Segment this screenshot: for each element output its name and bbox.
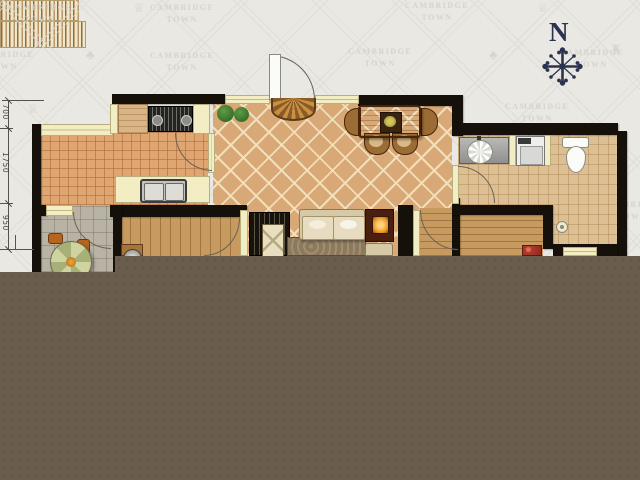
crown-motif: ♕ — [537, 0, 549, 16]
bathroom-vanity — [459, 137, 509, 164]
drain-center — [560, 225, 564, 229]
shell-sink-icon — [467, 140, 493, 164]
rug-center-panel — [262, 224, 284, 257]
window — [315, 95, 359, 104]
stove-icon — [148, 106, 193, 132]
kitchen-sink-icon — [140, 179, 187, 203]
table-lamp-icon — [372, 216, 389, 234]
dimension-extension-line — [15, 235, 16, 250]
door-jamb — [413, 210, 420, 256]
wall — [543, 205, 553, 249]
tv-cabinet-rug — [249, 212, 290, 256]
tower-motif: ♜ — [610, 42, 622, 58]
watermark: CAMBRIDGETOWN — [8, 2, 72, 26]
wall — [458, 123, 618, 135]
wall — [110, 205, 247, 217]
sofa — [299, 209, 365, 240]
sink-basin — [144, 183, 164, 201]
sofa-cushion — [302, 216, 334, 240]
door-jamb — [240, 210, 248, 256]
window — [225, 95, 270, 104]
sink-basin — [165, 183, 184, 201]
wall — [452, 205, 543, 215]
unloaded-image-region — [0, 272, 640, 480]
washing-machine-icon — [516, 136, 545, 166]
watermark: CAMBRIDGETOWN — [150, 50, 214, 74]
kitchen-counter — [118, 104, 148, 134]
wall — [398, 205, 413, 256]
sofa-cushion — [333, 216, 365, 240]
balcony-door-sill — [46, 205, 73, 216]
watermark: CAMBRIDGETOWN — [0, 49, 34, 73]
watermark: CAMBRIDGETOWN — [348, 46, 412, 70]
door-jamb — [544, 135, 551, 166]
floor-plan-image: CAMBRIDGETOWN CAMBRIDGETOWN CAMBRIDGETOW… — [0, 0, 640, 480]
washer-lid — [520, 146, 543, 165]
window — [563, 247, 597, 256]
burner-icon — [152, 115, 163, 126]
window — [41, 124, 113, 136]
crown-motif: ♕ — [133, 0, 145, 16]
crown-motif: ♕ — [27, 101, 39, 117]
faucet-icon — [477, 136, 481, 140]
wall — [112, 94, 225, 104]
tree-motif: ♣ — [489, 47, 498, 62]
dimension-label: 1750 — [1, 152, 10, 173]
burner-icon — [181, 115, 192, 126]
armchair — [365, 243, 393, 256]
watermark: CAMBRIDGETOWN — [405, 0, 469, 24]
sofa-pillow — [309, 220, 326, 229]
side-table — [365, 209, 394, 242]
door-jamb — [110, 104, 118, 134]
dimension-tick — [0, 249, 34, 250]
compass-north-label: N — [549, 17, 569, 48]
kitchen-counter — [193, 104, 210, 134]
wall — [617, 131, 627, 256]
dimension-label: 950 — [1, 215, 10, 231]
table-centerpiece — [380, 112, 402, 133]
sofa-pillow — [340, 220, 357, 229]
flower-bowl — [384, 116, 396, 127]
flower-decor — [522, 245, 542, 256]
dining-table — [358, 105, 421, 138]
floor-drain-icon — [556, 221, 568, 233]
watermark: CAMBRIDGETOWN — [505, 101, 569, 125]
compass-rose-icon — [540, 47, 585, 86]
dimension-label: 700 — [1, 104, 10, 120]
watermark: CAMBRIDGETOWN — [150, 2, 214, 26]
umbrella-pole — [66, 257, 76, 267]
plant-icon — [217, 105, 234, 122]
washer-control-panel — [518, 138, 531, 144]
entry-mat — [271, 98, 316, 121]
door-jamb — [509, 135, 516, 166]
entry-door-leaf — [269, 54, 281, 100]
tree-motif: ♣ — [86, 47, 95, 62]
plant-icon — [234, 107, 249, 122]
